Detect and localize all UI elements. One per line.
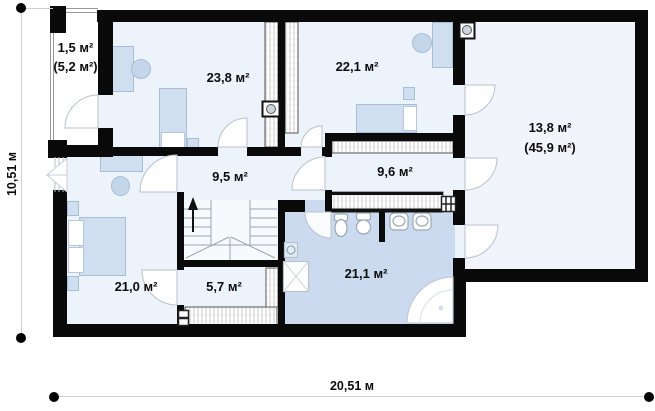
door-arc bbox=[218, 118, 247, 147]
sink bbox=[413, 213, 431, 230]
balcony-area: 1,5 м² bbox=[58, 40, 94, 55]
dimension-dot bbox=[16, 333, 26, 343]
bidet bbox=[357, 213, 371, 234]
shower-tray bbox=[284, 262, 309, 292]
sink bbox=[390, 213, 408, 230]
room-label-bathroom: 21,1 м² bbox=[316, 264, 416, 284]
door-hinge-icon bbox=[179, 311, 189, 326]
window bbox=[47, 157, 67, 192]
room-label-balcony: 1,5 м² (5,2 м²) bbox=[53, 38, 98, 76]
chimney-flue-icon bbox=[460, 23, 475, 39]
dimension-label-height: 10,51 м bbox=[5, 134, 21, 214]
glass-block-icon bbox=[442, 197, 456, 212]
door-arc bbox=[465, 85, 495, 115]
toilet bbox=[335, 214, 348, 237]
door-arc bbox=[305, 212, 331, 238]
dimension-dot bbox=[16, 3, 26, 13]
dimension-line-vertical bbox=[21, 8, 22, 338]
room-label-bedroom-1: 23,8 м² bbox=[178, 68, 278, 88]
room-label-bedroom-2: 22,1 м² bbox=[307, 57, 407, 77]
floor-drain bbox=[285, 243, 298, 258]
dimension-line-horizontal bbox=[54, 396, 649, 397]
room-label-closet: 9,6 м² bbox=[345, 162, 445, 182]
balcony-area-total: (5,2 м²) bbox=[53, 59, 97, 74]
door-arc bbox=[65, 95, 98, 128]
room-label-corridor: 5,7 м² bbox=[174, 277, 274, 297]
room-label-attic-space: 13,8 м² (45,9 м²) bbox=[495, 118, 605, 158]
room-label-hallway: 9,5 м² bbox=[180, 167, 280, 187]
door-arc bbox=[140, 155, 177, 192]
door-arc bbox=[301, 126, 322, 147]
door-arcs bbox=[65, 85, 498, 305]
dimension-label-width: 20,51 м bbox=[302, 379, 402, 393]
attic-area-total: (45,9 м²) bbox=[495, 138, 605, 158]
door-arc bbox=[292, 157, 325, 190]
dimension-dot bbox=[49, 392, 59, 402]
chimney-flue-icon bbox=[263, 102, 280, 117]
room-label-bedroom-3: 21,0 м² bbox=[86, 277, 186, 297]
door-arc bbox=[465, 225, 498, 258]
attic-area: 13,8 м² bbox=[495, 118, 605, 138]
floor-plan: 1,5 м² (5,2 м²) 23,8 м² 22,1 м² 13,8 м² … bbox=[0, 0, 655, 411]
door-arc bbox=[465, 158, 497, 190]
dimension-dot bbox=[644, 392, 654, 402]
